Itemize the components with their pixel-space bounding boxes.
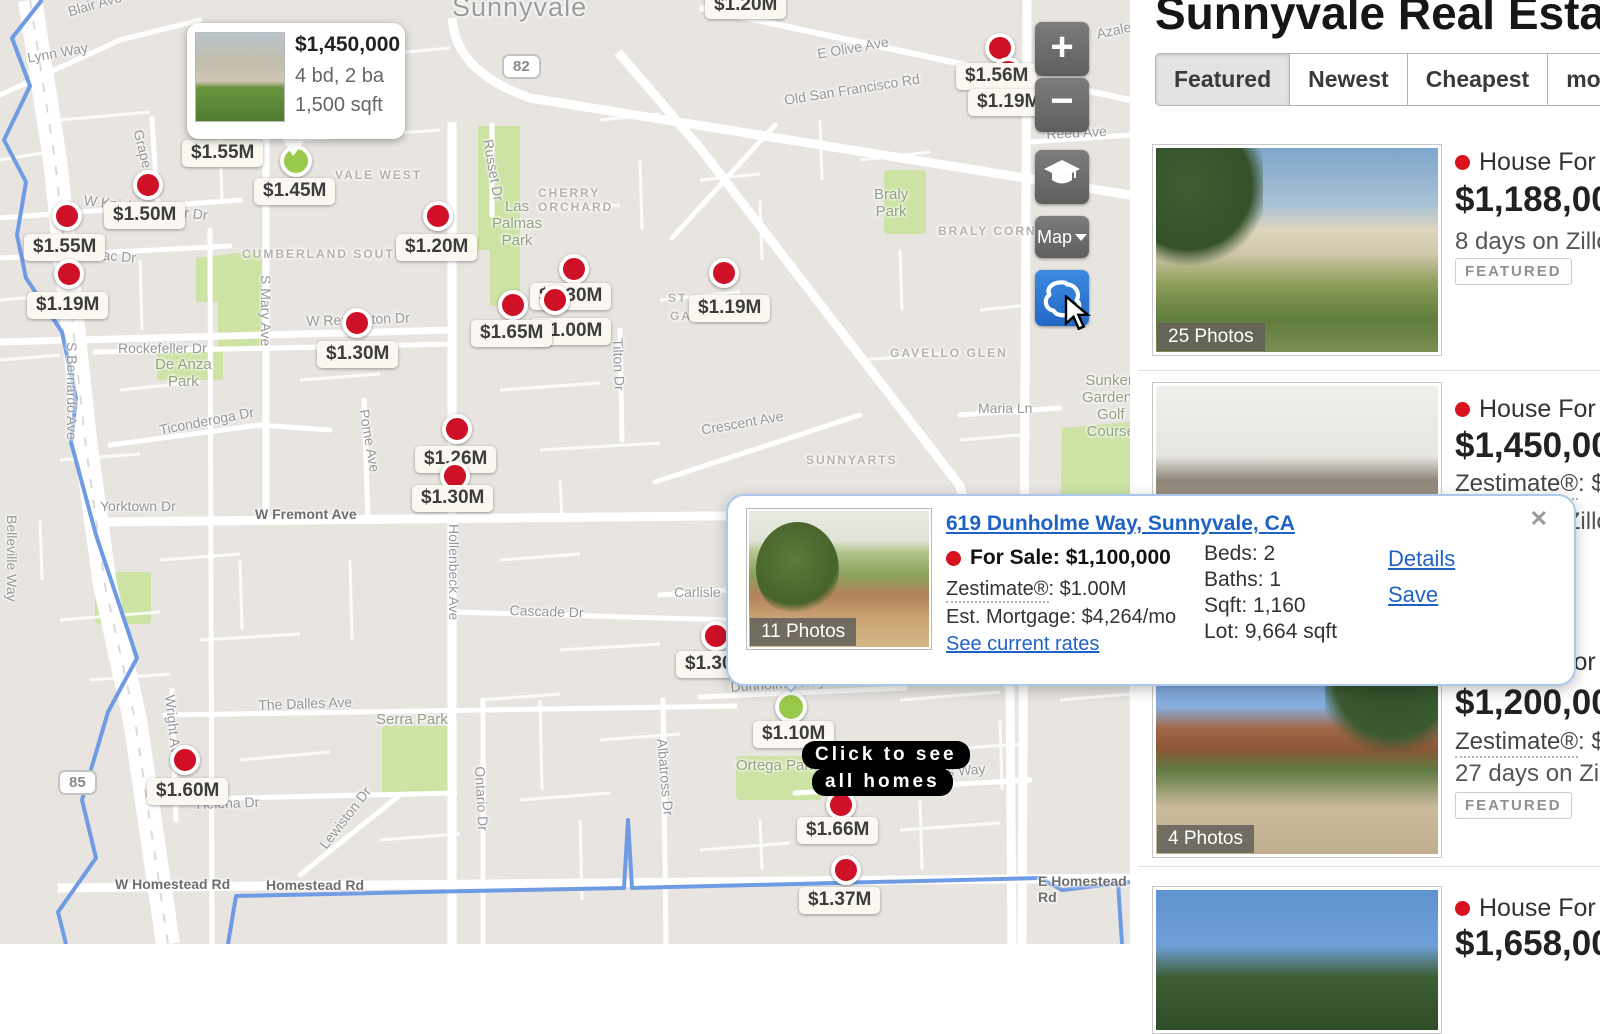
price-chip[interactable]: $1.20M bbox=[396, 234, 477, 261]
map-markers-layer: $1.20M$1.56M$1.19M$1.50M$1.55M$1.19M$1.5… bbox=[0, 0, 1130, 944]
listing-price: $1,200,000 bbox=[1455, 683, 1600, 723]
map-marker[interactable] bbox=[442, 414, 472, 444]
popup-sqft: Sqft: 1,160 bbox=[1204, 594, 1306, 618]
map-marker[interactable] bbox=[709, 258, 739, 288]
for-sale-dot-icon bbox=[1455, 155, 1470, 170]
graduation-cap-icon bbox=[1042, 179, 1082, 196]
mouse-cursor-icon bbox=[1062, 295, 1094, 336]
for-sale-dot-icon bbox=[946, 551, 961, 566]
price-chip[interactable]: $1.19M bbox=[689, 295, 770, 322]
listing-days: 8 days on Zillow bbox=[1455, 228, 1600, 256]
map-canvas[interactable]: Blair AveLynn WayGrape AveW Knickerbocke… bbox=[0, 0, 1130, 944]
listing-status-label: House For Sale bbox=[1479, 395, 1600, 424]
listing-days: 27 days on Zillow bbox=[1455, 760, 1600, 788]
zestimate-value: : $1.00M bbox=[1049, 578, 1127, 600]
price-chip[interactable]: $1.30M bbox=[412, 485, 493, 512]
popup-status-label: For Sale: $1,100,000 bbox=[970, 546, 1171, 570]
map-type-label: Map bbox=[1037, 227, 1072, 247]
zillow-map-page: { "map": { "city": "Sunnyvale", "hover_c… bbox=[0, 0, 1600, 944]
sort-tabs: Featured Newest Cheapest more bbox=[1155, 53, 1600, 106]
tab-more-label: more bbox=[1566, 66, 1600, 92]
hover-card-sqft: 1,500 sqft bbox=[295, 94, 383, 117]
price-chip[interactable]: $1.19M bbox=[27, 292, 108, 319]
popup-tail-cover bbox=[770, 650, 814, 672]
price-chip[interactable]: $1.30M bbox=[317, 341, 398, 368]
current-rates-link[interactable]: See current rates bbox=[946, 633, 1099, 656]
zestimate-value: : $1 bbox=[1578, 728, 1600, 755]
hover-card-tail bbox=[282, 138, 307, 156]
tab-newest[interactable]: Newest bbox=[1289, 53, 1408, 106]
hover-card-price: $1,450,000 bbox=[295, 33, 400, 57]
popup-status-row: For Sale: $1,100,000 bbox=[946, 546, 1171, 570]
price-chip[interactable]: $1.66M bbox=[797, 817, 878, 844]
map-marker[interactable] bbox=[52, 201, 82, 231]
price-chip[interactable]: $1.37M bbox=[799, 887, 880, 914]
zoom-in-button[interactable]: + bbox=[1035, 22, 1089, 76]
featured-badge: FEATURED bbox=[1455, 258, 1572, 285]
popup-lot: Lot: 9,664 sqft bbox=[1204, 620, 1337, 644]
details-link[interactable]: Details bbox=[1388, 546, 1455, 572]
map-marker[interactable] bbox=[133, 170, 163, 200]
schools-button[interactable] bbox=[1035, 150, 1089, 204]
listing-status: House For Sale bbox=[1455, 395, 1600, 424]
for-sale-dot-icon bbox=[1455, 901, 1470, 916]
map-marker[interactable] bbox=[170, 745, 200, 775]
zestimate-label[interactable]: Zestimate® bbox=[1455, 728, 1578, 758]
listing-status: House For Sale bbox=[1455, 894, 1600, 923]
zestimate-value: : $1 bbox=[1578, 470, 1600, 497]
page-title: Sunnyvale Real Estate bbox=[1155, 0, 1600, 40]
price-chip[interactable]: $1.65M bbox=[471, 320, 552, 347]
popup-baths: Baths: 1 bbox=[1204, 568, 1281, 592]
photo-count-badge: 25 Photos bbox=[1157, 323, 1265, 351]
price-chip[interactable]: $1.55M bbox=[182, 140, 263, 167]
listing-photo[interactable]: 25 Photos bbox=[1152, 144, 1442, 356]
popup-address-link[interactable]: 619 Dunholme Way, Sunnyvale, CA bbox=[946, 512, 1295, 536]
price-chip[interactable]: $1.56M bbox=[956, 63, 1037, 90]
listing-popup: 11 Photos 619 Dunholme Way, Sunnyvale, C… bbox=[726, 494, 1576, 686]
map-marker[interactable] bbox=[423, 201, 453, 231]
price-chip[interactable]: $1.20M bbox=[705, 0, 786, 19]
chevron-down-icon bbox=[1075, 234, 1087, 241]
listing-status: House For Sale bbox=[1455, 148, 1600, 177]
tab-more[interactable]: more bbox=[1547, 53, 1600, 106]
divider bbox=[1138, 866, 1600, 867]
for-sale-dot-icon bbox=[1455, 402, 1470, 417]
map-marker[interactable] bbox=[831, 855, 861, 885]
map-type-button[interactable]: Map bbox=[1035, 216, 1089, 258]
listing-hover-card[interactable]: $1,450,000 4 bd, 2 ba 1,500 sqft bbox=[187, 23, 405, 139]
popup-photo[interactable]: 11 Photos bbox=[746, 508, 932, 650]
listing-price: $1,450,000 bbox=[1455, 426, 1600, 466]
listing-status-label: House For Sale bbox=[1479, 148, 1600, 177]
map-marker[interactable] bbox=[342, 308, 372, 338]
listing-zestimate: Zestimate®: $1 bbox=[1455, 728, 1600, 756]
zestimate-label[interactable]: Zestimate® bbox=[946, 578, 1049, 603]
listing-status-label: House For Sale bbox=[1479, 894, 1600, 923]
listing-price: $1,658,000 bbox=[1455, 924, 1600, 964]
featured-badge: FEATURED bbox=[1455, 792, 1572, 819]
popup-beds: Beds: 2 bbox=[1204, 542, 1275, 566]
hover-card-beds-baths: 4 bd, 2 ba bbox=[295, 65, 384, 88]
price-chip[interactable]: $1.45M bbox=[254, 178, 335, 205]
map-marker[interactable] bbox=[54, 259, 84, 289]
map-marker[interactable] bbox=[540, 285, 570, 315]
price-chip[interactable]: $1.55M bbox=[24, 234, 105, 261]
hover-card-photo bbox=[195, 32, 285, 122]
popup-zestimate: Zestimate®: $1.00M bbox=[946, 578, 1126, 601]
map-tooltip-line2: all homes bbox=[812, 768, 953, 796]
map-marker[interactable] bbox=[498, 290, 528, 320]
popup-mortgage: Est. Mortgage: $4,264/mo bbox=[946, 606, 1176, 629]
listing-price: $1,188,000 bbox=[1455, 180, 1600, 220]
price-chip[interactable]: $1.50M bbox=[104, 202, 185, 229]
divider bbox=[1138, 370, 1600, 371]
price-chip[interactable]: $1.60M bbox=[147, 778, 228, 805]
save-link[interactable]: Save bbox=[1388, 582, 1438, 608]
photo-count-badge: 4 Photos bbox=[1157, 825, 1254, 853]
listing-photo[interactable] bbox=[1152, 886, 1442, 1034]
map-marker[interactable] bbox=[559, 254, 589, 284]
tab-featured[interactable]: Featured bbox=[1155, 53, 1290, 106]
map-tooltip-line1: Click to see bbox=[802, 741, 970, 769]
close-icon[interactable]: ✕ bbox=[1530, 506, 1548, 532]
listings-sidebar: Sunnyvale Real Estate Featured Newest Ch… bbox=[1130, 0, 1600, 944]
zoom-out-button[interactable]: − bbox=[1035, 78, 1089, 132]
tab-cheapest[interactable]: Cheapest bbox=[1407, 53, 1549, 106]
photo-count-badge: 11 Photos bbox=[750, 618, 856, 646]
map-marker[interactable] bbox=[775, 691, 807, 723]
